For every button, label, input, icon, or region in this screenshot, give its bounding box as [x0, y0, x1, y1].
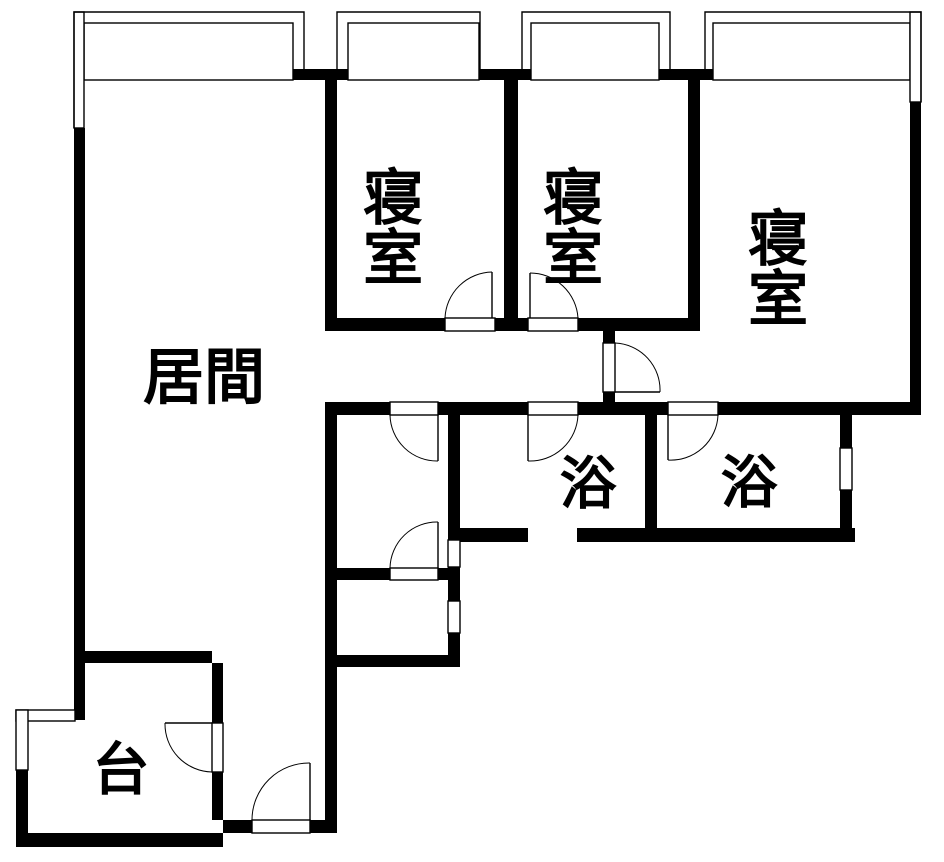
room-label-bath-2: 浴 [721, 454, 778, 512]
room-label-bedroom-3: 寝室 [741, 207, 802, 327]
floor-plan-canvas [0, 0, 944, 862]
floor-plan: 居間 寝室 寝室 寝室 浴 浴 台 [0, 0, 944, 862]
room-label-living-room: 居間 [143, 347, 265, 409]
room-label-bath-1: 浴 [560, 455, 617, 513]
room-label-kitchen: 台 [93, 741, 150, 799]
room-label-bedroom-2: 寝室 [536, 166, 597, 286]
room-label-bedroom-1: 寝室 [356, 166, 417, 286]
